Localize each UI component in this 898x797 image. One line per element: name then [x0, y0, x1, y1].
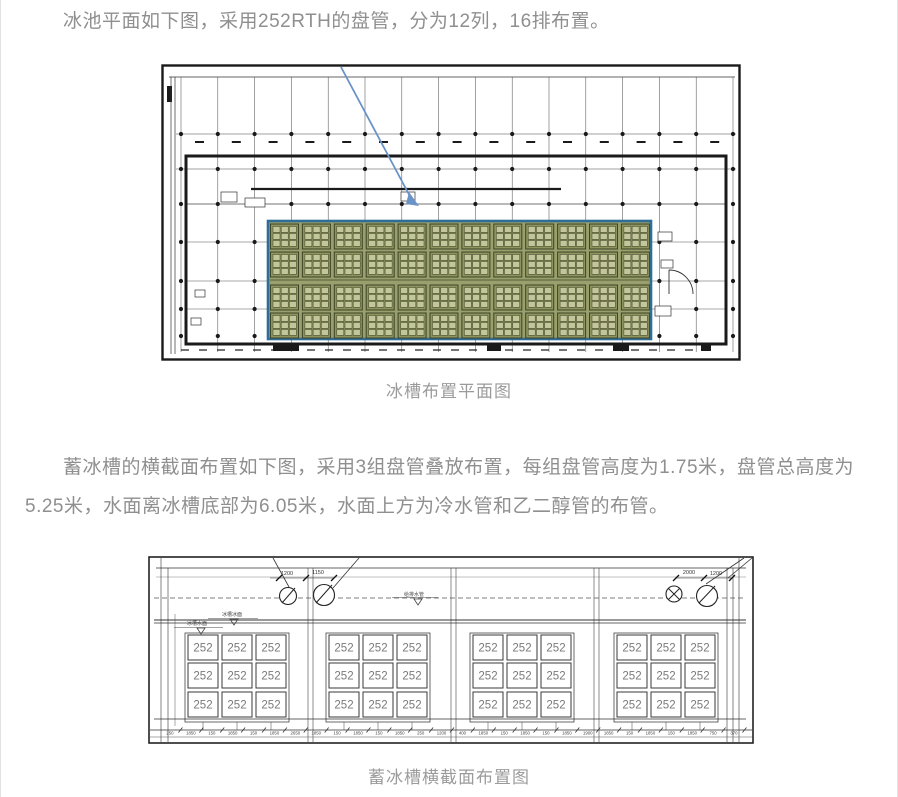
svg-text:252: 252	[227, 643, 246, 655]
svg-text:252: 252	[402, 643, 421, 655]
coil-group	[494, 285, 522, 310]
coil-group	[621, 285, 649, 310]
svg-text:252: 252	[656, 671, 675, 683]
coil-group	[558, 313, 586, 338]
paragraph-plan-intro: 冰池平面如下图，采用252RTH的盘管，分为12列，16排布置。	[25, 2, 873, 41]
svg-text:252: 252	[261, 671, 280, 683]
svg-text:750: 750	[710, 731, 718, 736]
svg-text:252: 252	[546, 671, 565, 683]
svg-text:252: 252	[261, 643, 280, 655]
svg-text:150: 150	[626, 731, 634, 736]
coil-group	[302, 285, 330, 310]
svg-text:252: 252	[261, 700, 280, 712]
coil-group	[462, 252, 490, 277]
svg-text:1850: 1850	[687, 731, 697, 736]
svg-text:1850: 1850	[353, 731, 363, 736]
svg-text:1850: 1850	[646, 731, 656, 736]
svg-text:252: 252	[512, 700, 531, 712]
coil-group	[430, 313, 458, 338]
svg-text:150: 150	[542, 731, 550, 736]
svg-text:252: 252	[690, 643, 709, 655]
coil-group	[558, 224, 586, 249]
svg-text:1900: 1900	[583, 731, 593, 736]
svg-text:150: 150	[334, 731, 342, 736]
svg-text:252: 252	[193, 671, 212, 683]
coil-group	[526, 313, 554, 338]
svg-text:252: 252	[402, 671, 421, 683]
coil-group	[302, 313, 330, 338]
svg-text:252: 252	[690, 671, 709, 683]
svg-text:1850: 1850	[479, 731, 489, 736]
section-svg: 1200115020001200冰槽冰面冰槽水面给排水管252252252252…	[148, 556, 754, 744]
svg-text:252: 252	[690, 700, 709, 712]
coil-group	[366, 285, 394, 310]
svg-text:150: 150	[501, 731, 509, 736]
svg-text:252: 252	[546, 700, 565, 712]
svg-text:252: 252	[512, 671, 531, 683]
figure-section-caption: 蓄冰槽横截面布置图	[1, 763, 897, 788]
figure-plan-caption: 冰槽布置平面图	[1, 377, 897, 402]
coil-group	[430, 252, 458, 277]
coil-group	[271, 252, 299, 277]
svg-text:冰槽冰面: 冰槽冰面	[222, 611, 242, 618]
coil-group	[462, 313, 490, 338]
coil-stack-group: 252252252252252252252252252	[614, 633, 718, 730]
svg-text:252: 252	[546, 643, 565, 655]
svg-text:250: 250	[166, 731, 174, 736]
svg-text:1850: 1850	[520, 731, 530, 736]
svg-text:150: 150	[668, 731, 676, 736]
coil-stack-group: 252252252252252252252252252	[470, 633, 574, 730]
pipe-circle	[697, 586, 718, 607]
svg-text:1850: 1850	[562, 731, 572, 736]
svg-text:2650: 2650	[291, 731, 301, 736]
svg-text:252: 252	[368, 643, 387, 655]
coil-group	[271, 313, 299, 338]
svg-text:400: 400	[459, 731, 467, 736]
svg-text:1850: 1850	[604, 731, 614, 736]
svg-text:252: 252	[334, 671, 353, 683]
svg-text:252: 252	[622, 671, 641, 683]
coil-field-highlight	[268, 221, 651, 339]
coil-group	[398, 285, 426, 310]
svg-text:150: 150	[375, 731, 383, 736]
svg-text:1850: 1850	[311, 731, 321, 736]
svg-text:370: 370	[730, 731, 738, 736]
svg-text:冰槽水面: 冰槽水面	[187, 620, 207, 627]
coil-group	[398, 252, 426, 277]
coil-group	[462, 224, 490, 249]
coil-group	[398, 313, 426, 338]
svg-text:252: 252	[656, 643, 675, 655]
svg-text:1850: 1850	[395, 731, 405, 736]
svg-text:252: 252	[478, 671, 497, 683]
coil-group	[621, 224, 649, 249]
coil-group	[430, 285, 458, 310]
coil-group	[590, 285, 618, 310]
coil-group	[558, 252, 586, 277]
coil-group	[398, 224, 426, 249]
svg-text:250: 250	[417, 731, 425, 736]
figure-plan-drawing	[161, 64, 741, 361]
svg-text:252: 252	[334, 700, 353, 712]
coil-stack-group: 252252252252252252252252252	[326, 633, 430, 730]
svg-text:252: 252	[622, 643, 641, 655]
coil-group	[494, 313, 522, 338]
coil-group	[526, 224, 554, 249]
coil-group	[366, 252, 394, 277]
coil-group	[271, 285, 299, 310]
svg-text:252: 252	[193, 700, 212, 712]
svg-text:252: 252	[656, 700, 675, 712]
svg-text:1850: 1850	[186, 731, 196, 736]
coil-group	[334, 252, 362, 277]
svg-text:252: 252	[402, 700, 421, 712]
svg-text:150: 150	[250, 731, 258, 736]
svg-text:252: 252	[227, 700, 246, 712]
coil-group	[590, 313, 618, 338]
svg-text:252: 252	[368, 700, 387, 712]
coil-group	[334, 313, 362, 338]
coil-group	[621, 313, 649, 338]
coil-group	[334, 285, 362, 310]
coil-stack-group: 252252252252252252252252252	[185, 633, 289, 730]
svg-text:150: 150	[208, 731, 216, 736]
svg-text:252: 252	[622, 700, 641, 712]
coil-group	[526, 285, 554, 310]
svg-text:2000: 2000	[683, 570, 695, 576]
coil-group	[334, 224, 362, 249]
coil-group	[366, 224, 394, 249]
coil-group	[302, 252, 330, 277]
svg-text:252: 252	[334, 643, 353, 655]
svg-text:252: 252	[193, 643, 212, 655]
article-page: 冰池平面如下图，采用252RTH的盘管，分为12列，16排布置。 冰槽布置平面图…	[0, 0, 898, 797]
plan-svg	[161, 64, 741, 361]
coil-group	[621, 252, 649, 277]
coil-group	[302, 224, 330, 249]
svg-text:1150: 1150	[312, 570, 324, 576]
svg-text:给排水管: 给排水管	[404, 591, 424, 598]
coil-group	[271, 224, 299, 249]
svg-text:252: 252	[478, 700, 497, 712]
coil-group	[366, 313, 394, 338]
svg-text:1850: 1850	[270, 731, 280, 736]
coil-group	[430, 224, 458, 249]
figure-section-drawing: 1200115020001200冰槽冰面冰槽水面给排水管252252252252…	[148, 556, 754, 744]
svg-text:252: 252	[368, 671, 387, 683]
coil-group	[494, 252, 522, 277]
coil-group	[590, 252, 618, 277]
svg-text:252: 252	[478, 643, 497, 655]
coil-group	[590, 224, 618, 249]
coil-group	[526, 252, 554, 277]
svg-text:252: 252	[512, 643, 531, 655]
paragraph-section-intro: 蓄冰槽的横截面布置如下图，采用3组盘管叠放布置，每组盘管高度为1.75米，盘管总…	[25, 448, 873, 526]
svg-text:1850: 1850	[228, 731, 238, 736]
svg-text:252: 252	[227, 671, 246, 683]
coil-group	[494, 224, 522, 249]
coil-group	[462, 285, 490, 310]
coil-group	[558, 285, 586, 310]
svg-text:1200: 1200	[437, 731, 447, 736]
